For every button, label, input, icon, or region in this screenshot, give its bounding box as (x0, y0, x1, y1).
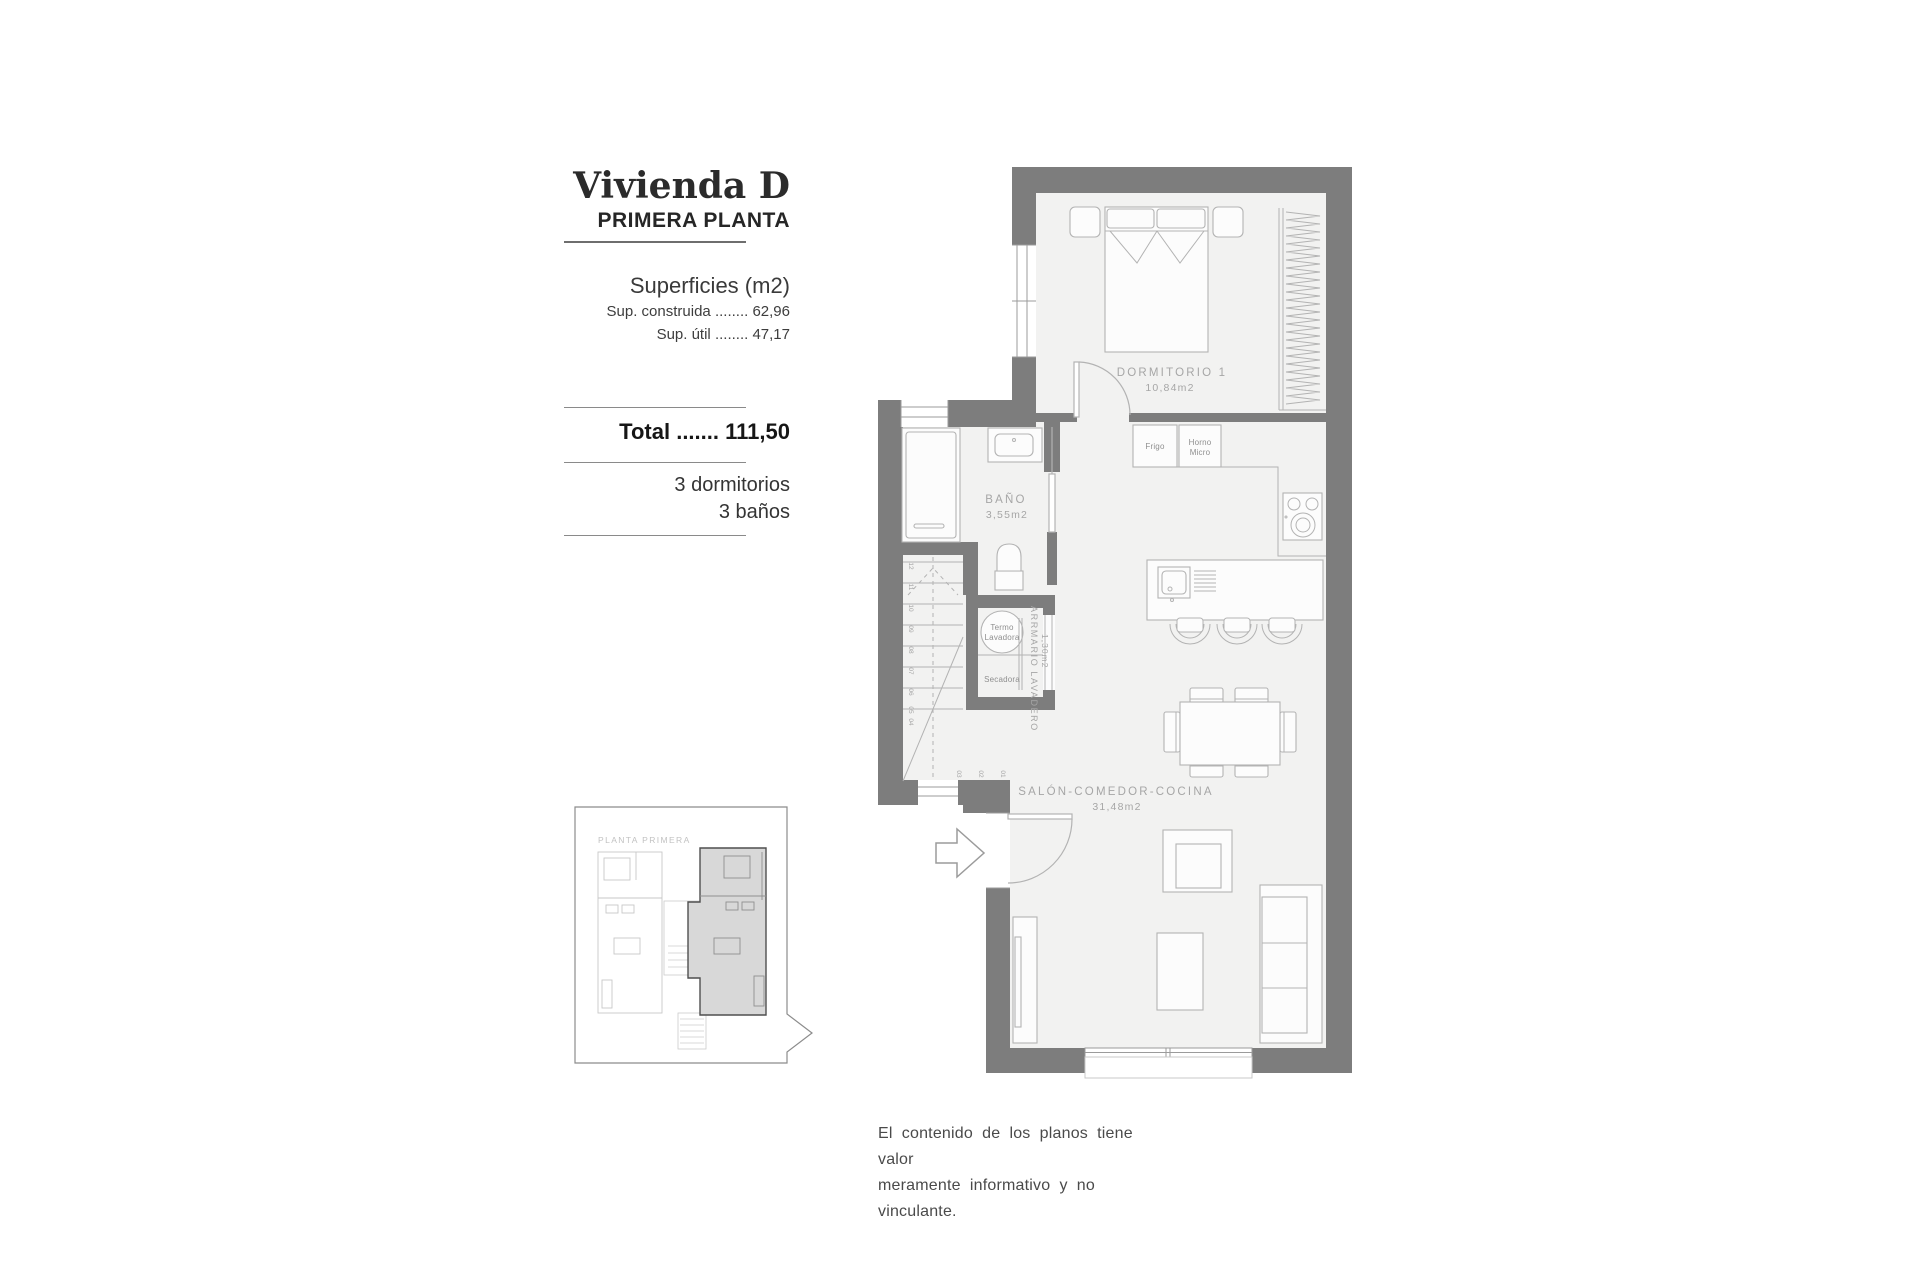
entry-arrow-icon (936, 829, 984, 877)
toilet-cistern (995, 571, 1023, 590)
label-secadora: Secadora (984, 675, 1020, 684)
label-horno-1: Horno (1189, 438, 1212, 447)
svg-text:09: 09 (907, 625, 914, 633)
mini-plan-label: PLANTA PRIMERA (598, 835, 691, 845)
label-bano-area: 3,55m2 (986, 509, 1028, 521)
toilet (997, 544, 1021, 571)
dining-table (1180, 702, 1280, 765)
svg-text:08: 08 (907, 646, 914, 654)
svg-text:07: 07 (907, 667, 914, 675)
bed (1105, 207, 1208, 352)
label-salon: SALÓN-COMEDOR-COCINA (1018, 785, 1213, 798)
plan-drawing: DORMITORIO 1 10,84m2 BAÑO 3,55m2 SALÓN-C… (0, 0, 1920, 1280)
label-armario-area: 1,30m2 (1040, 634, 1050, 668)
label-dormitorio: DORMITORIO 1 (1117, 367, 1228, 379)
bath-sink (995, 434, 1033, 456)
svg-text:06: 06 (907, 688, 914, 696)
label-termo-1: Termo (990, 623, 1014, 632)
pillow (1107, 209, 1154, 228)
svg-text:11: 11 (907, 584, 914, 591)
mini-plan: PLANTA PRIMERA (575, 807, 812, 1063)
chair (1235, 688, 1268, 703)
chair (1280, 712, 1296, 752)
label-horno-2: Micro (1190, 448, 1211, 457)
nightstand-left (1070, 207, 1100, 237)
svg-text:01: 01 (999, 770, 1006, 778)
chair (1190, 688, 1223, 703)
floorplan-sheet: Vivienda D PRIMERA PLANTA Superficies (m… (0, 0, 1920, 1280)
coffee-table (1157, 933, 1203, 1010)
label-dormitorio-area: 10,84m2 (1145, 382, 1194, 394)
label-frigo: Frigo (1145, 442, 1165, 451)
chair (1164, 712, 1180, 752)
svg-text:05: 05 (907, 706, 914, 714)
svg-text:02: 02 (977, 770, 984, 778)
label-salon-area: 31,48m2 (1092, 801, 1141, 813)
svg-text:03: 03 (955, 770, 962, 778)
nightstand-right (1213, 207, 1243, 237)
label-armario: ARRMARIO LAVADERO (1029, 606, 1039, 732)
pillow (1157, 209, 1205, 228)
washer (981, 611, 1023, 653)
label-bano: BAÑO (985, 493, 1026, 506)
svg-text:10: 10 (907, 604, 914, 612)
svg-text:04: 04 (907, 718, 914, 726)
label-termo-2: Lavadora (985, 633, 1020, 642)
svg-text:12: 12 (907, 562, 914, 570)
tv (1015, 937, 1021, 1027)
